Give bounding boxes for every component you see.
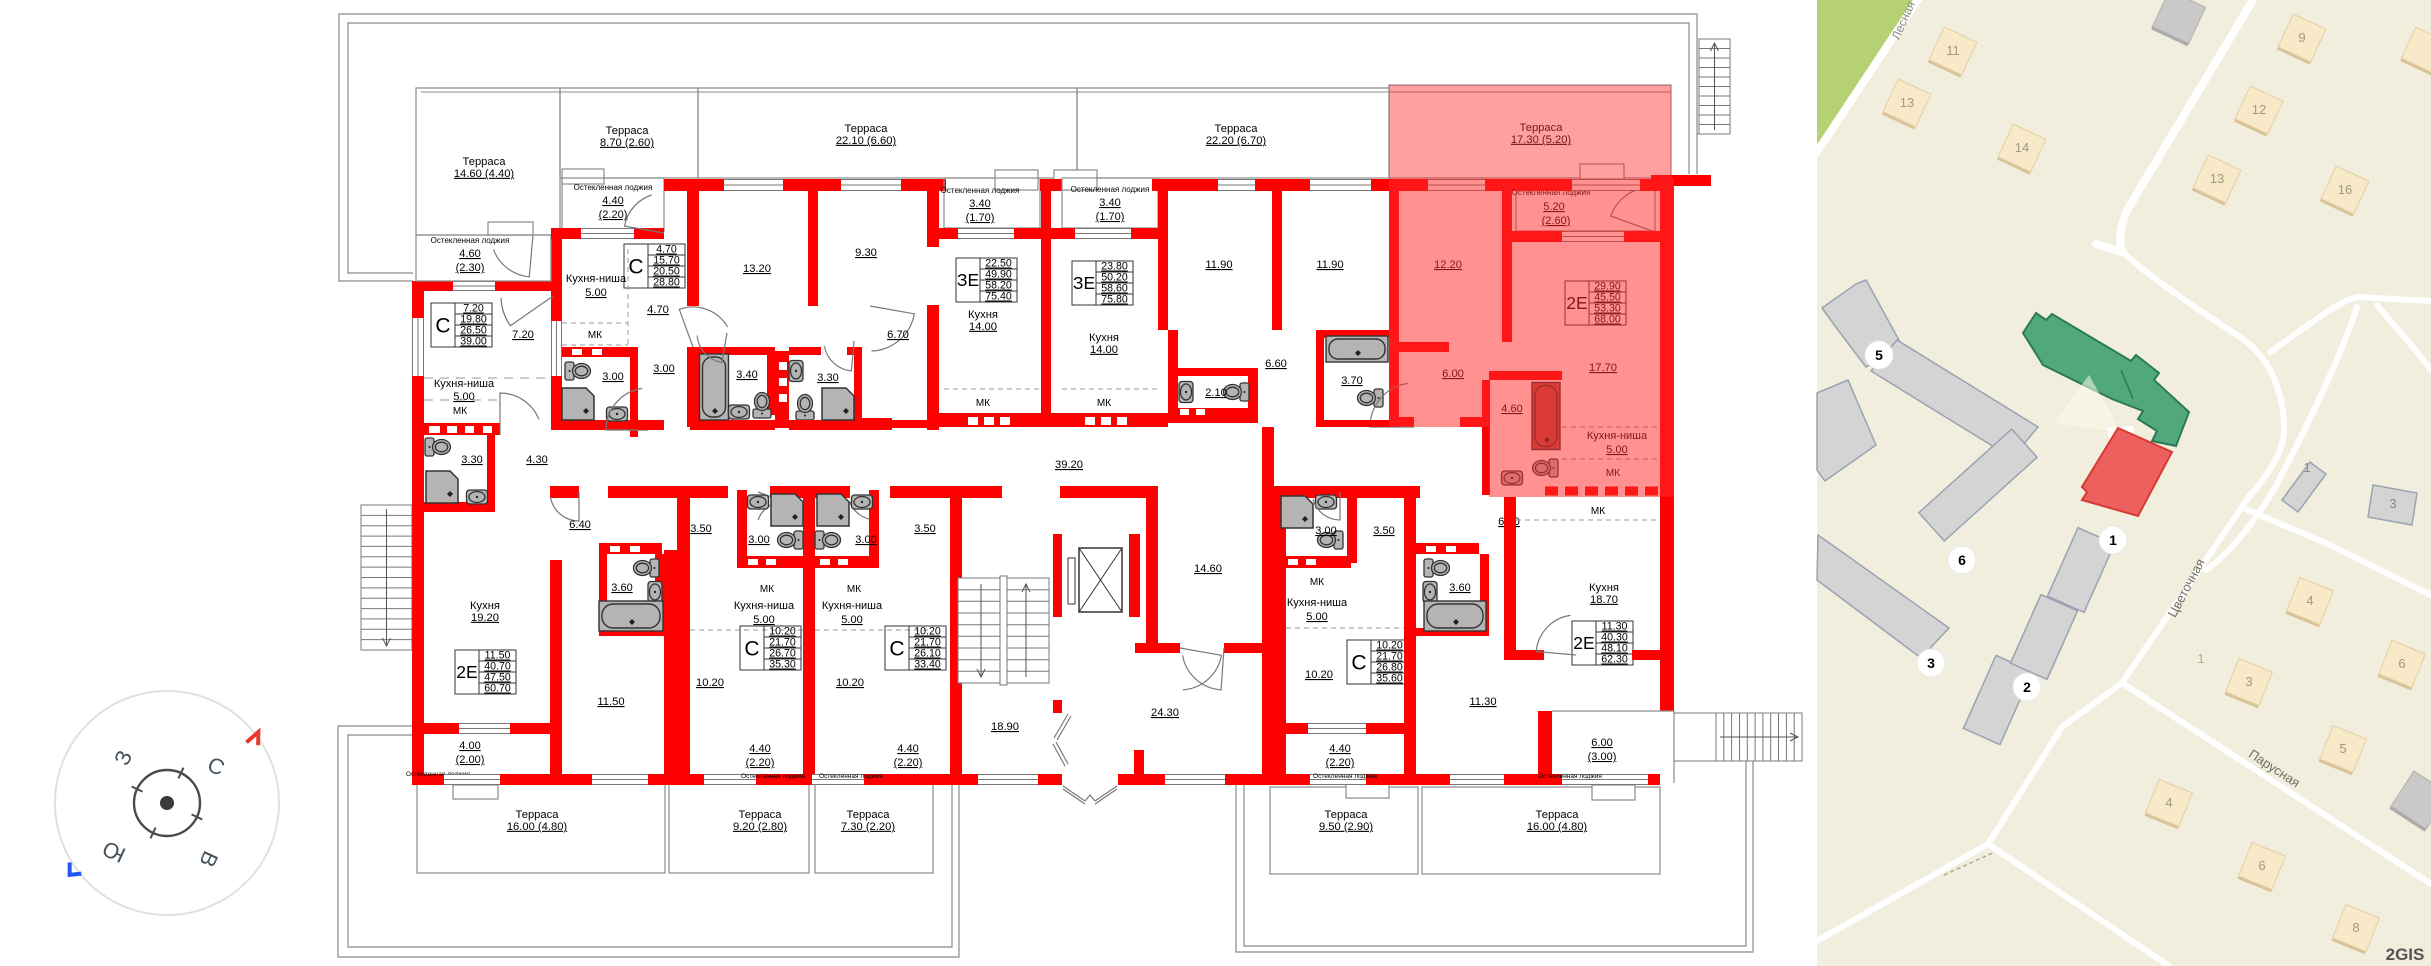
svg-text:22.10 (6.60): 22.10 (6.60) xyxy=(836,135,897,147)
svg-text:5.00: 5.00 xyxy=(585,287,606,299)
svg-text:5: 5 xyxy=(2339,741,2346,756)
svg-text:12: 12 xyxy=(2252,102,2266,117)
svg-text:(2.20): (2.20) xyxy=(599,209,628,221)
svg-text:6.70: 6.70 xyxy=(887,329,909,341)
svg-text:МК: МК xyxy=(760,584,774,595)
svg-text:14.60 (4.40): 14.60 (4.40) xyxy=(454,168,515,180)
svg-text:14.00: 14.00 xyxy=(1090,344,1118,356)
svg-text:Терраса: Терраса xyxy=(463,156,507,168)
svg-text:Терраса: Терраса xyxy=(1215,123,1259,135)
svg-text:18.90: 18.90 xyxy=(991,721,1019,733)
svg-text:(2.20): (2.20) xyxy=(1326,757,1355,769)
svg-text:6.40: 6.40 xyxy=(569,519,591,531)
svg-text:Остекленная лоджия: Остекленная лоджия xyxy=(1313,773,1377,780)
svg-text:39.00: 39.00 xyxy=(460,336,487,348)
svg-text:Терраса: Терраса xyxy=(1536,809,1580,821)
svg-text:3.60: 3.60 xyxy=(611,582,632,594)
svg-text:2: 2 xyxy=(2023,679,2031,695)
svg-text:3.00: 3.00 xyxy=(653,363,674,375)
svg-text:14.00: 14.00 xyxy=(969,321,997,333)
svg-text:Кухня: Кухня xyxy=(470,600,500,612)
svg-text:Терраса: Терраса xyxy=(739,809,783,821)
svg-text:Остекленная лоджия: Остекленная лоджия xyxy=(741,773,805,780)
svg-text:3.60: 3.60 xyxy=(1449,582,1470,594)
svg-text:13: 13 xyxy=(2210,171,2224,186)
svg-text:62.30: 62.30 xyxy=(1601,654,1628,666)
svg-text:8.70 (2.60): 8.70 (2.60) xyxy=(600,137,654,149)
svg-text:3.50: 3.50 xyxy=(914,523,935,535)
svg-text:С: С xyxy=(744,637,759,660)
svg-text:МК: МК xyxy=(1310,577,1324,588)
svg-text:35.60: 35.60 xyxy=(1376,673,1403,685)
svg-text:11.50: 11.50 xyxy=(597,696,624,708)
svg-text:4.00: 4.00 xyxy=(459,740,480,752)
svg-text:4.40: 4.40 xyxy=(897,743,918,755)
svg-text:С: С xyxy=(889,637,904,660)
svg-text:18.70: 18.70 xyxy=(1590,594,1618,606)
svg-text:(2.00): (2.00) xyxy=(456,754,485,766)
svg-text:(2.20): (2.20) xyxy=(746,757,775,769)
svg-text:3.40: 3.40 xyxy=(1099,197,1120,209)
svg-text:16.00 (4.80): 16.00 (4.80) xyxy=(1527,821,1588,833)
svg-text:Терраса: Терраса xyxy=(847,809,891,821)
svg-text:10.20: 10.20 xyxy=(1305,669,1333,681)
svg-text:75.40: 75.40 xyxy=(985,291,1012,303)
svg-text:3.40: 3.40 xyxy=(736,369,757,381)
svg-text:6: 6 xyxy=(2398,656,2405,671)
svg-text:Кухня-ниша: Кухня-ниша xyxy=(734,600,795,612)
svg-text:(1.70): (1.70) xyxy=(966,212,995,224)
svg-text:16.00 (4.80): 16.00 (4.80) xyxy=(507,821,568,833)
svg-text:28.80: 28.80 xyxy=(653,277,680,289)
svg-text:Кухня: Кухня xyxy=(1089,332,1119,344)
svg-text:14: 14 xyxy=(2015,140,2029,155)
svg-text:7.20: 7.20 xyxy=(512,329,534,341)
svg-text:Терраса: Терраса xyxy=(1325,809,1369,821)
svg-text:3.00: 3.00 xyxy=(855,534,876,546)
svg-text:Терраса: Терраса xyxy=(845,123,889,135)
svg-text:(1.70): (1.70) xyxy=(1096,211,1125,223)
svg-text:(2.20): (2.20) xyxy=(894,757,923,769)
svg-text:5: 5 xyxy=(1875,347,1883,363)
svg-text:3.50: 3.50 xyxy=(690,523,711,535)
svg-text:4: 4 xyxy=(2306,593,2313,608)
svg-text:4.70: 4.70 xyxy=(647,304,669,316)
svg-text:3.00: 3.00 xyxy=(1315,525,1336,537)
svg-text:2Е: 2Е xyxy=(456,662,477,682)
svg-text:4: 4 xyxy=(2165,795,2172,810)
svg-text:4.30: 4.30 xyxy=(526,454,547,466)
svg-text:С: С xyxy=(435,314,450,337)
svg-text:10.20: 10.20 xyxy=(836,677,864,689)
svg-text:16: 16 xyxy=(2338,182,2352,197)
svg-text:5.00: 5.00 xyxy=(753,614,774,626)
svg-text:11.90: 11.90 xyxy=(1316,259,1343,271)
svg-text:39.20: 39.20 xyxy=(1055,459,1083,471)
svg-text:МК: МК xyxy=(976,398,990,409)
svg-text:5.00: 5.00 xyxy=(453,391,474,403)
svg-text:2Е: 2Е xyxy=(1573,633,1594,653)
svg-text:6: 6 xyxy=(1958,552,1966,568)
svg-text:3.70: 3.70 xyxy=(1341,375,1362,387)
svg-text:3: 3 xyxy=(2389,496,2396,511)
svg-text:Кухня-ниша: Кухня-ниша xyxy=(1287,597,1348,609)
svg-text:3.00: 3.00 xyxy=(602,371,623,383)
svg-text:9.30: 9.30 xyxy=(855,247,877,259)
svg-text:Кухня: Кухня xyxy=(968,309,998,321)
svg-text:6: 6 xyxy=(2258,858,2265,873)
svg-text:3.40: 3.40 xyxy=(969,198,990,210)
svg-text:Остекленная лоджия: Остекленная лоджия xyxy=(941,186,1020,195)
svg-text:3.30: 3.30 xyxy=(817,372,838,384)
svg-text:МК: МК xyxy=(847,584,861,595)
svg-text:3: 3 xyxy=(1927,655,1935,671)
svg-text:19.20: 19.20 xyxy=(471,612,499,624)
svg-text:Остекленная лоджия: Остекленная лоджия xyxy=(1538,773,1602,780)
svg-text:Терраса: Терраса xyxy=(516,809,560,821)
svg-text:МК: МК xyxy=(1097,398,1111,409)
svg-text:75.80: 75.80 xyxy=(1101,294,1128,306)
svg-text:3: 3 xyxy=(2245,674,2252,689)
svg-text:3.50: 3.50 xyxy=(1373,525,1394,537)
svg-text:(2.30): (2.30) xyxy=(456,262,485,274)
svg-text:Остекленная лоджия: Остекленная лоджия xyxy=(819,773,883,780)
svg-text:3.30: 3.30 xyxy=(461,454,482,466)
svg-text:Остекленная лоджия: Остекленная лоджия xyxy=(574,183,653,192)
svg-text:1: 1 xyxy=(2109,532,2117,548)
svg-text:Остекленная лоджия: Остекленная лоджия xyxy=(431,236,510,245)
svg-text:5.00: 5.00 xyxy=(1306,611,1327,623)
svg-text:МК: МК xyxy=(588,330,602,341)
svg-text:6.00: 6.00 xyxy=(1591,737,1612,749)
svg-text:4.40: 4.40 xyxy=(749,743,770,755)
svg-text:35.30: 35.30 xyxy=(769,659,796,671)
svg-text:2GIS: 2GIS xyxy=(2386,945,2425,964)
svg-text:ЗЕ: ЗЕ xyxy=(1073,273,1095,293)
svg-text:4.40: 4.40 xyxy=(1329,743,1350,755)
svg-text:11: 11 xyxy=(1946,43,1960,58)
svg-text:9: 9 xyxy=(2298,30,2305,45)
svg-text:11.30: 11.30 xyxy=(1469,696,1496,708)
svg-text:МК: МК xyxy=(1591,506,1605,517)
svg-text:3.00: 3.00 xyxy=(748,534,769,546)
svg-text:60.70: 60.70 xyxy=(484,683,511,695)
svg-text:Кухня: Кухня xyxy=(1589,582,1619,594)
svg-text:Кухня-ниша: Кухня-ниша xyxy=(566,273,627,285)
svg-text:14.60: 14.60 xyxy=(1194,563,1222,575)
svg-text:9.20 (2.80): 9.20 (2.80) xyxy=(733,821,787,833)
svg-text:8: 8 xyxy=(2352,920,2359,935)
svg-text:10.20: 10.20 xyxy=(696,677,724,689)
svg-text:1: 1 xyxy=(2197,651,2204,666)
svg-text:С: С xyxy=(628,255,643,278)
svg-text:2.10: 2.10 xyxy=(1205,387,1226,399)
svg-text:МК: МК xyxy=(453,406,467,417)
svg-text:13.20: 13.20 xyxy=(743,263,771,275)
svg-text:6.60: 6.60 xyxy=(1265,358,1287,370)
svg-text:Кухня-ниша: Кухня-ниша xyxy=(434,378,495,390)
svg-text:11.90: 11.90 xyxy=(1205,259,1232,271)
svg-text:24.30: 24.30 xyxy=(1151,707,1179,719)
svg-text:9.50 (2.90): 9.50 (2.90) xyxy=(1319,821,1373,833)
svg-text:Терраса: Терраса xyxy=(606,125,650,137)
svg-text:33.40: 33.40 xyxy=(914,659,941,671)
svg-text:Кухня-ниша: Кухня-ниша xyxy=(822,600,883,612)
svg-text:1: 1 xyxy=(2303,460,2310,475)
svg-text:ЗЕ: ЗЕ xyxy=(957,270,979,290)
svg-text:4.40: 4.40 xyxy=(602,195,623,207)
svg-text:22.20 (6.70): 22.20 (6.70) xyxy=(1206,135,1267,147)
svg-text:С: С xyxy=(1351,651,1366,674)
svg-text:13: 13 xyxy=(1900,95,1914,110)
svg-text:5.00: 5.00 xyxy=(841,614,862,626)
svg-text:7.30 (2.20): 7.30 (2.20) xyxy=(841,821,895,833)
svg-text:Остекленная лоджия: Остекленная лоджия xyxy=(1071,185,1150,194)
svg-text:(3.00): (3.00) xyxy=(1588,751,1617,763)
svg-text:4.60: 4.60 xyxy=(459,248,480,260)
